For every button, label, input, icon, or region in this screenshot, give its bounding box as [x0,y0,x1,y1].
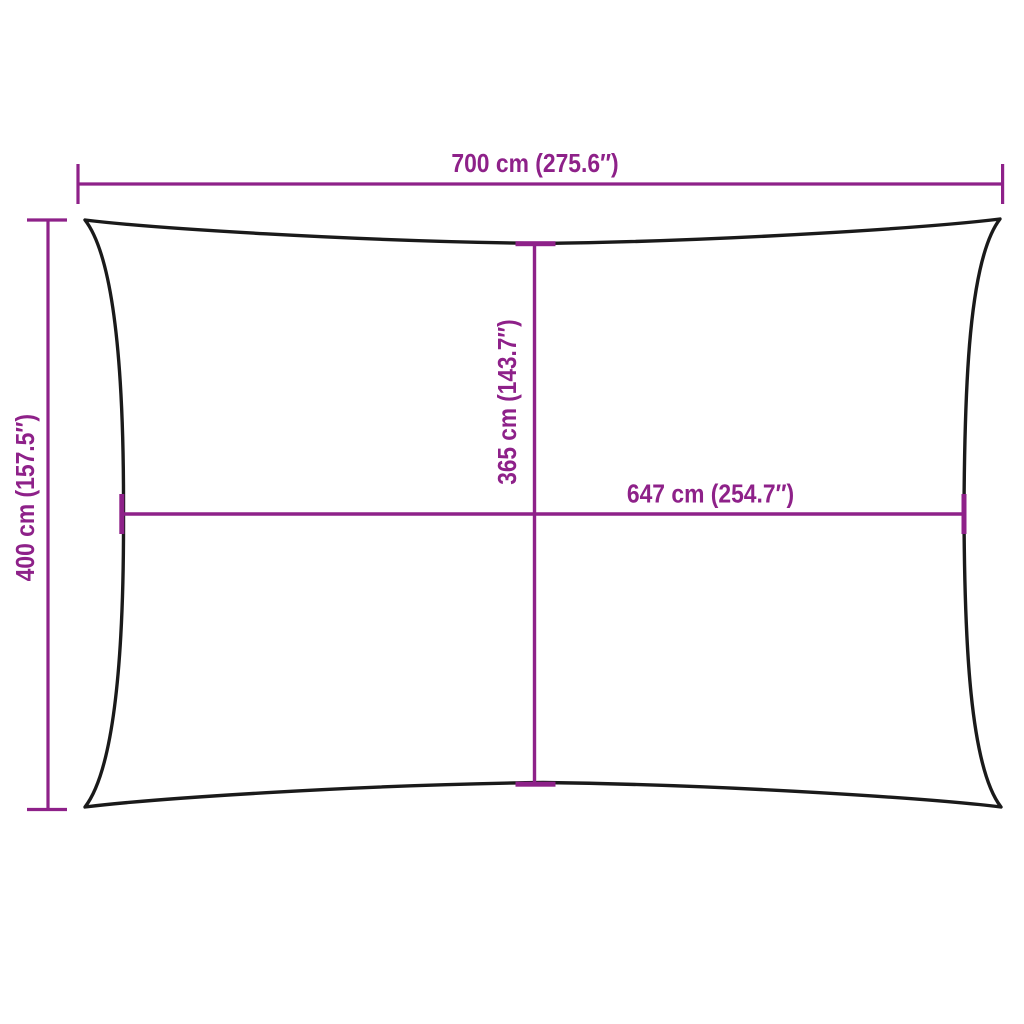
svg-text:647 cm (254.7″): 647 cm (254.7″) [627,480,794,509]
svg-text:400 cm (157.5″): 400 cm (157.5″) [12,414,41,581]
svg-text:700 cm (275.6″): 700 cm (275.6″) [451,150,618,179]
svg-text:365 cm (143.7″): 365 cm (143.7″) [494,319,523,484]
